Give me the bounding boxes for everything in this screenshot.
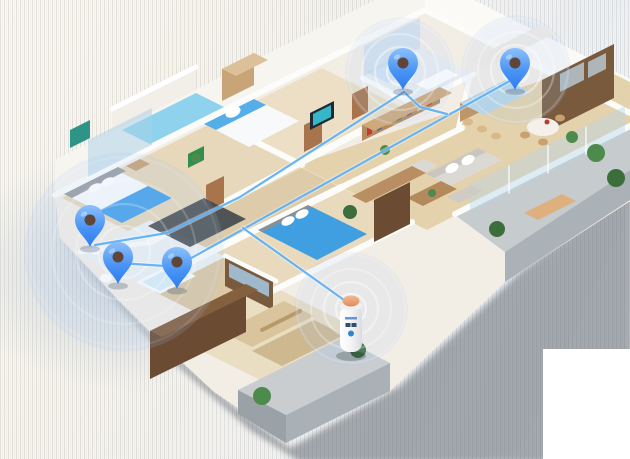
dining-chair-2	[538, 139, 548, 146]
smart-hub-cylinder-icon-body	[340, 306, 362, 352]
coffee-table-plant	[428, 189, 436, 197]
dining-chair-1	[520, 132, 530, 139]
floorplan-image	[0, 0, 630, 459]
white-corner-patch	[543, 349, 630, 459]
kitchen-stool-1	[463, 119, 473, 126]
dining-plant-pot	[545, 120, 550, 125]
corridor-plant	[191, 153, 201, 163]
bedroom1-wall-art	[70, 120, 90, 148]
smart-hub-cylinder-icon-label-mark	[345, 317, 357, 320]
south-balcony-plant-1	[253, 387, 271, 405]
balcony-plant-2	[587, 144, 605, 162]
map-pin-icon-bathroom1-hole	[398, 58, 409, 69]
map-pin-icon-closet-hole	[172, 257, 183, 268]
balcony-plant-3	[607, 169, 625, 187]
kitchen-stool-3	[491, 133, 501, 140]
smart-hub-cylinder-icon-snowflake-mark	[348, 331, 354, 337]
map-pin-icon-kitchen-hole	[510, 58, 521, 69]
kitchen-stool-2	[477, 126, 487, 133]
map-pin-icon-bathroom2-hole	[113, 252, 124, 263]
smart-hub-cylinder-icon-icon-right	[352, 323, 357, 327]
balcony-plant-1	[489, 221, 505, 237]
balcony-plant-4	[566, 131, 578, 143]
smart-hub-cylinder-icon-icon-left	[346, 323, 351, 327]
map-pin-icon-bedroom1-hole	[85, 215, 96, 226]
floorplan-graphic	[0, 0, 630, 459]
smart-hub-cylinder-icon-dome	[343, 296, 360, 307]
living-plant-1	[343, 205, 357, 219]
dining-chair-3	[555, 115, 565, 122]
smart-hub-cylinder-icon-shadow	[336, 351, 366, 361]
